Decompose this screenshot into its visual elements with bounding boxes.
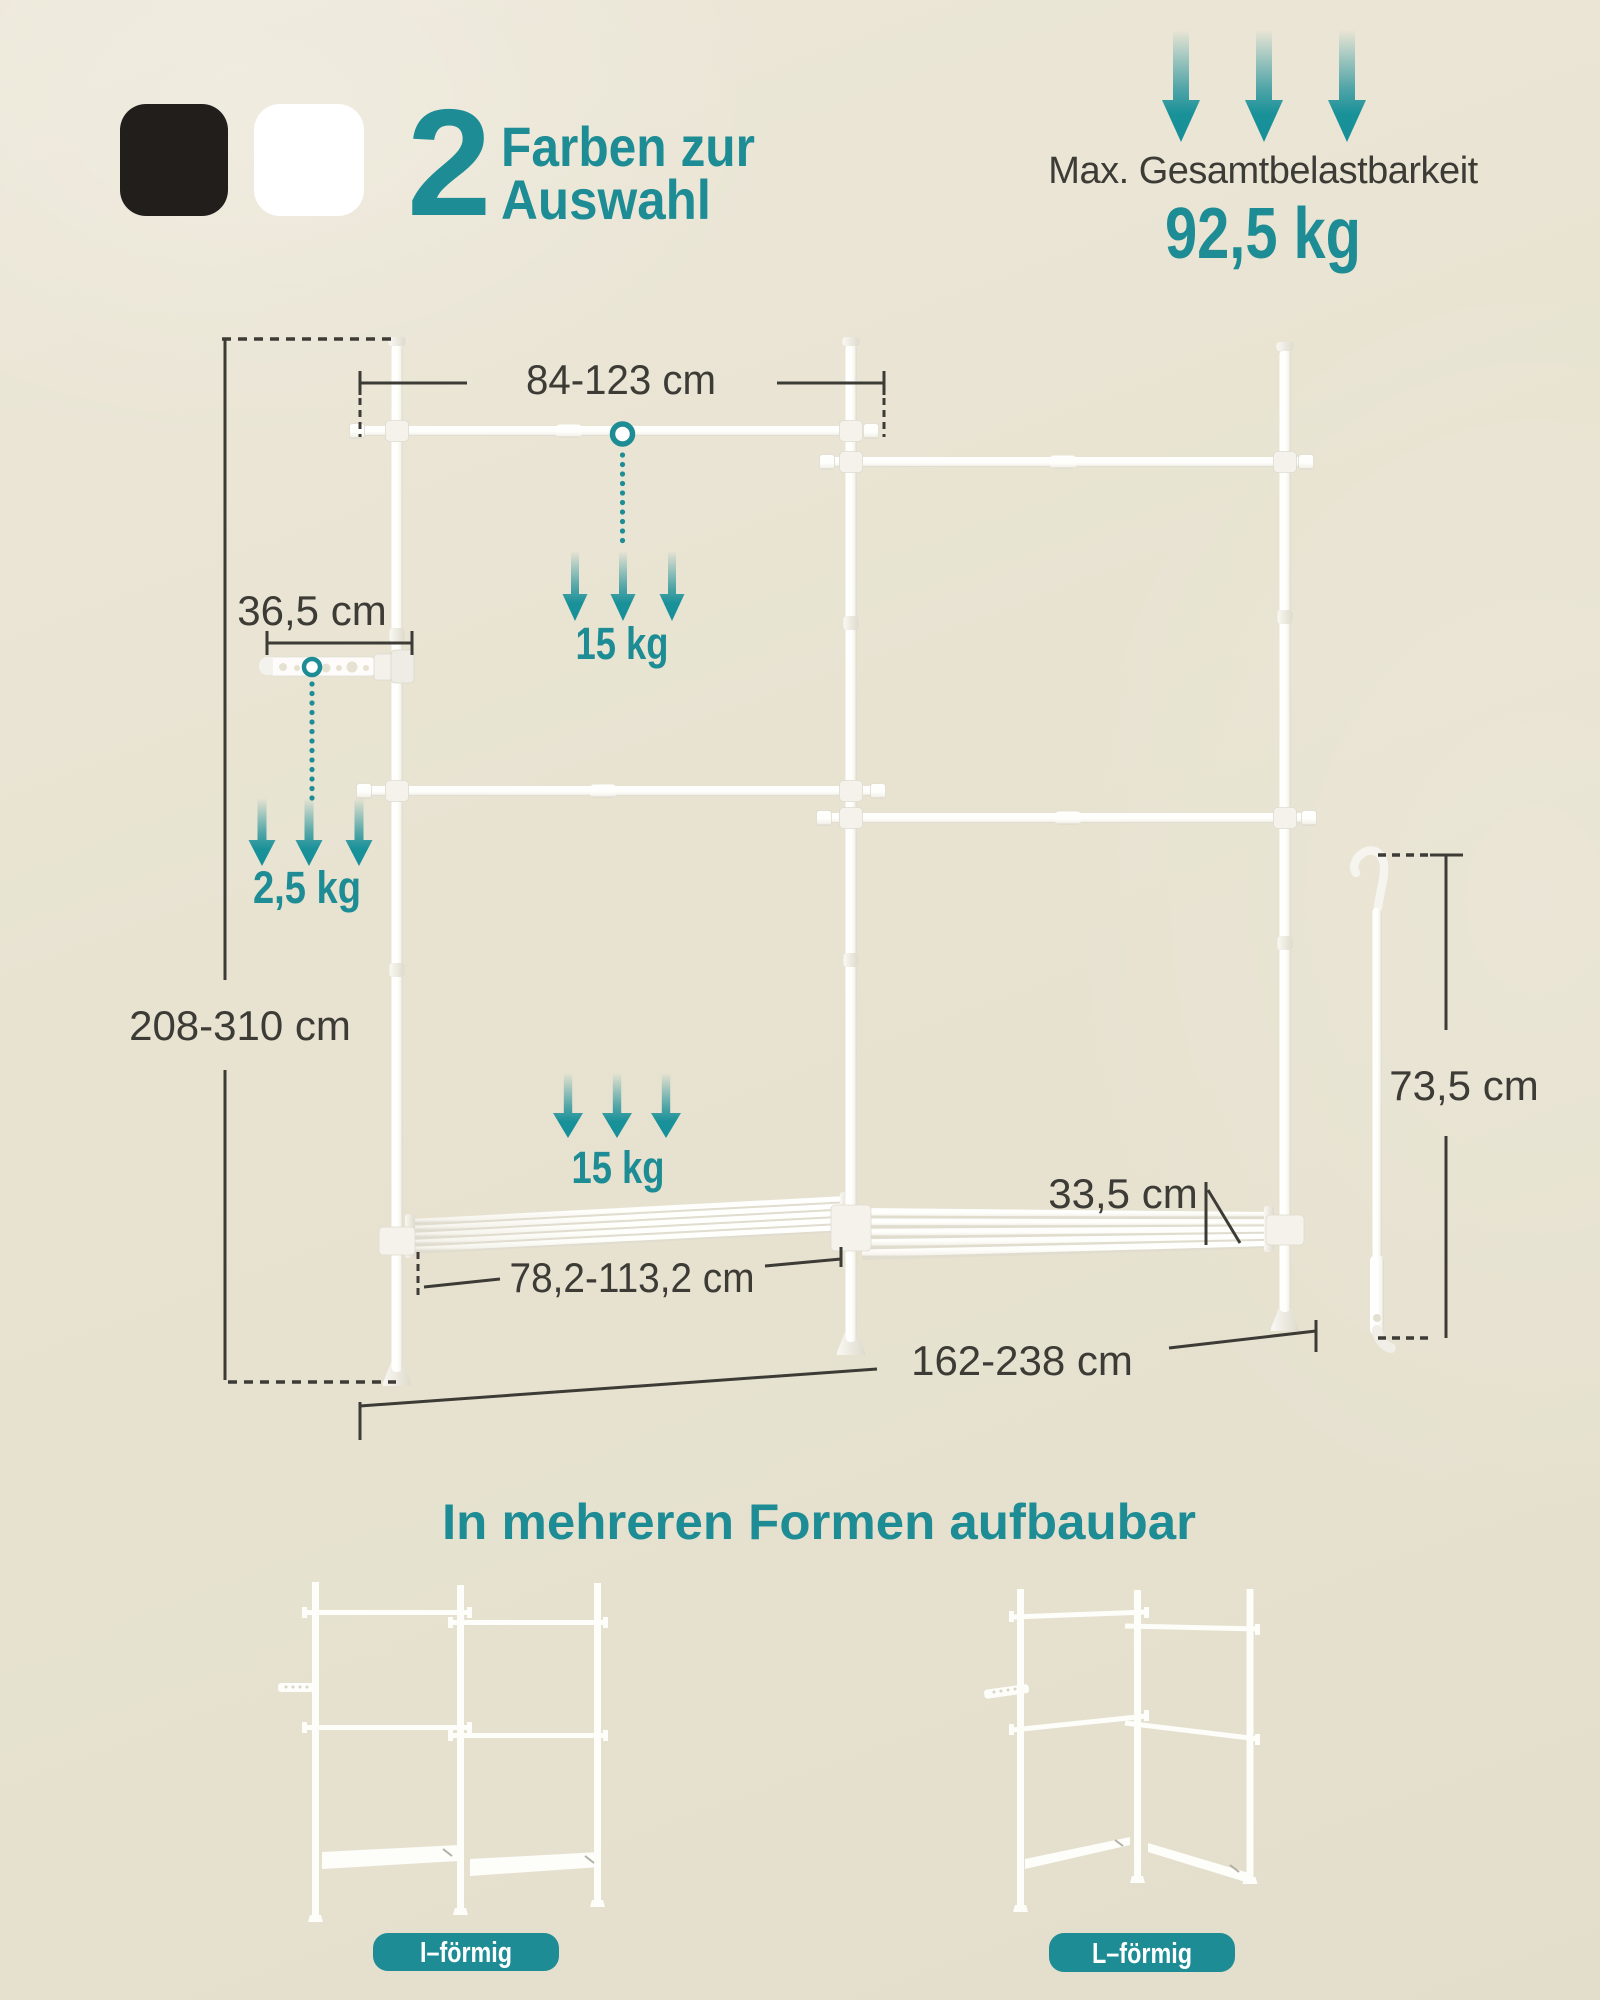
svg-text:15 kg: 15 kg: [576, 618, 669, 669]
svg-text:2,5 kg: 2,5 kg: [253, 862, 361, 913]
svg-text:Max. Gesamtbelastbarkeit: Max. Gesamtbelastbarkeit: [1048, 150, 1478, 192]
svg-text:I–förmig: I–förmig: [420, 1937, 512, 1969]
svg-text:78,2-113,2 cm: 78,2-113,2 cm: [510, 1254, 755, 1301]
svg-text:84-123 cm: 84-123 cm: [526, 356, 716, 403]
svg-text:Auswahl: Auswahl: [501, 168, 711, 231]
svg-text:In mehreren Formen aufbaubar: In mehreren Formen aufbaubar: [442, 1494, 1196, 1550]
svg-text:36,5 cm: 36,5 cm: [237, 587, 386, 634]
svg-text:92,5 kg: 92,5 kg: [1165, 194, 1361, 274]
svg-text:162-238 cm: 162-238 cm: [911, 1337, 1133, 1384]
svg-text:33,5 cm: 33,5 cm: [1048, 1170, 1197, 1217]
svg-text:208-310 cm: 208-310 cm: [129, 1002, 351, 1049]
svg-text:73,5 cm: 73,5 cm: [1389, 1062, 1538, 1109]
svg-text:2: 2: [407, 78, 490, 248]
svg-text:15 kg: 15 kg: [572, 1142, 665, 1193]
svg-text:L–förmig: L–förmig: [1092, 1938, 1192, 1970]
